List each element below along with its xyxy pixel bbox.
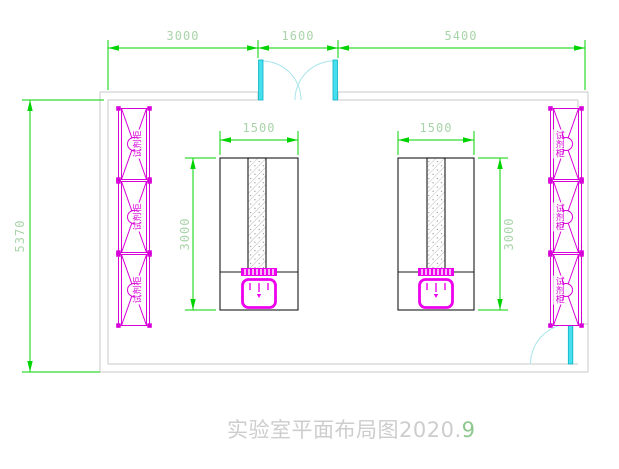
drawing-title-suffix: 9 <box>462 418 476 442</box>
top-double-door <box>259 60 338 100</box>
door-leaf-right <box>333 60 338 100</box>
drawing-title-text: 实验室平面布局图2020. <box>227 418 462 442</box>
dimension-lines <box>22 40 585 372</box>
reagent-cabinet <box>116 179 152 255</box>
cabinet-column-right <box>548 106 584 328</box>
cad-floorplan-canvas: 3000 1600 5400 5370 1500 3000 1500 3000 … <box>0 0 619 469</box>
door-swing-arc <box>531 324 571 364</box>
dimension-arrowheads <box>27 45 585 372</box>
reagent-shelf-strip <box>427 158 445 272</box>
reagent-cabinet <box>116 252 152 328</box>
room-walls <box>100 92 588 372</box>
sink-icon-1 <box>241 268 277 308</box>
drawing-title: 实验室平面布局图2020.9 <box>227 419 476 442</box>
reagent-cabinet <box>548 252 584 328</box>
door-leaf <box>568 324 573 364</box>
door-swing-arc <box>262 61 334 100</box>
right-single-door <box>531 324 573 364</box>
door-leaf-left <box>259 60 264 100</box>
reagent-cabinet <box>548 106 584 182</box>
reagent-cabinet <box>116 106 152 182</box>
floorplan-drawing <box>0 0 619 469</box>
reagent-shelf-strip <box>248 158 266 272</box>
reagent-cabinet <box>548 179 584 255</box>
sink-icon-2 <box>418 268 454 308</box>
cabinet-column-left <box>116 106 152 328</box>
